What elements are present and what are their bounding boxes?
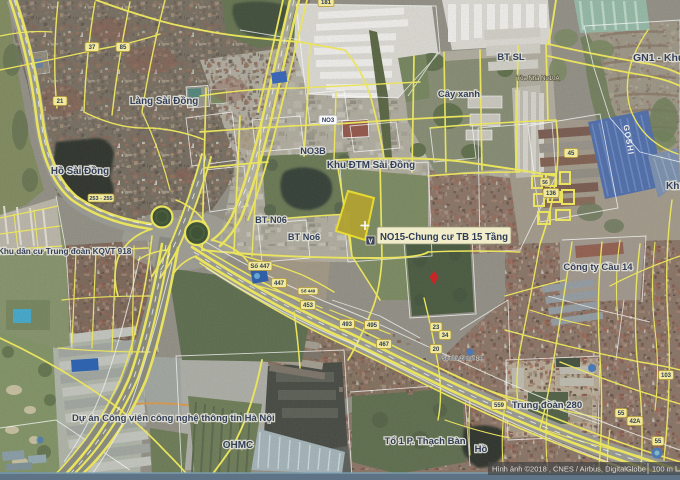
svg-text:100 m: 100 m <box>652 465 673 474</box>
svg-text:Hình ảnh ©2018 , CNES / Airbus: Hình ảnh ©2018 , CNES / Airbus, DigitalG… <box>492 465 646 474</box>
